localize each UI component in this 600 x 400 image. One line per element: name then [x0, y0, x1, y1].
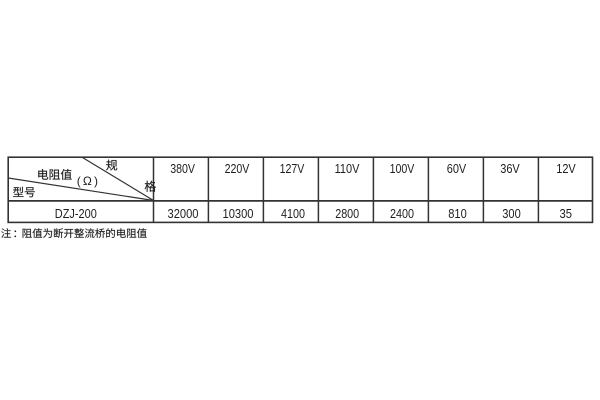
svg-text:36V: 36V: [500, 162, 520, 176]
svg-text:12V: 12V: [556, 162, 576, 176]
svg-text:810: 810: [448, 207, 467, 221]
svg-text:100V: 100V: [390, 162, 415, 176]
svg-text:(Ω): (Ω): [77, 174, 98, 188]
svg-text:2800: 2800: [335, 207, 359, 221]
svg-text:110V: 110V: [335, 162, 360, 176]
svg-text:300: 300: [502, 207, 521, 221]
svg-text:220V: 220V: [225, 162, 250, 176]
svg-text:2400: 2400: [390, 207, 414, 221]
svg-text:DZJ-200: DZJ-200: [55, 207, 97, 221]
svg-text:32000: 32000: [168, 207, 199, 221]
svg-text:380V: 380V: [170, 162, 195, 176]
svg-text:4100: 4100: [281, 207, 305, 221]
svg-text:60V: 60V: [447, 162, 467, 176]
svg-text:127V: 127V: [280, 162, 305, 176]
svg-text:10300: 10300: [223, 207, 254, 221]
svg-text:35: 35: [560, 207, 573, 221]
